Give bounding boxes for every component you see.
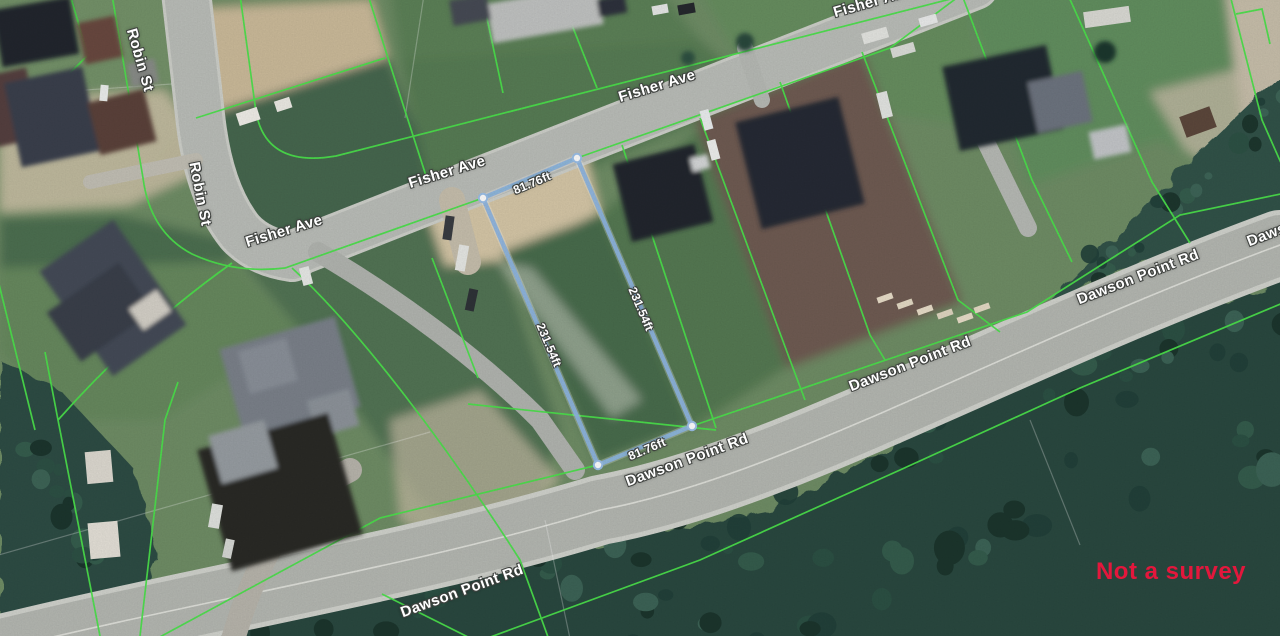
map-viewport[interactable]: Robin St Robin St Fisher Ave Fisher Ave … [0, 0, 1280, 636]
map-canvas[interactable] [0, 0, 1280, 636]
grain-overlay [0, 0, 1280, 636]
not-a-survey-watermark: Not a survey [1096, 558, 1246, 586]
